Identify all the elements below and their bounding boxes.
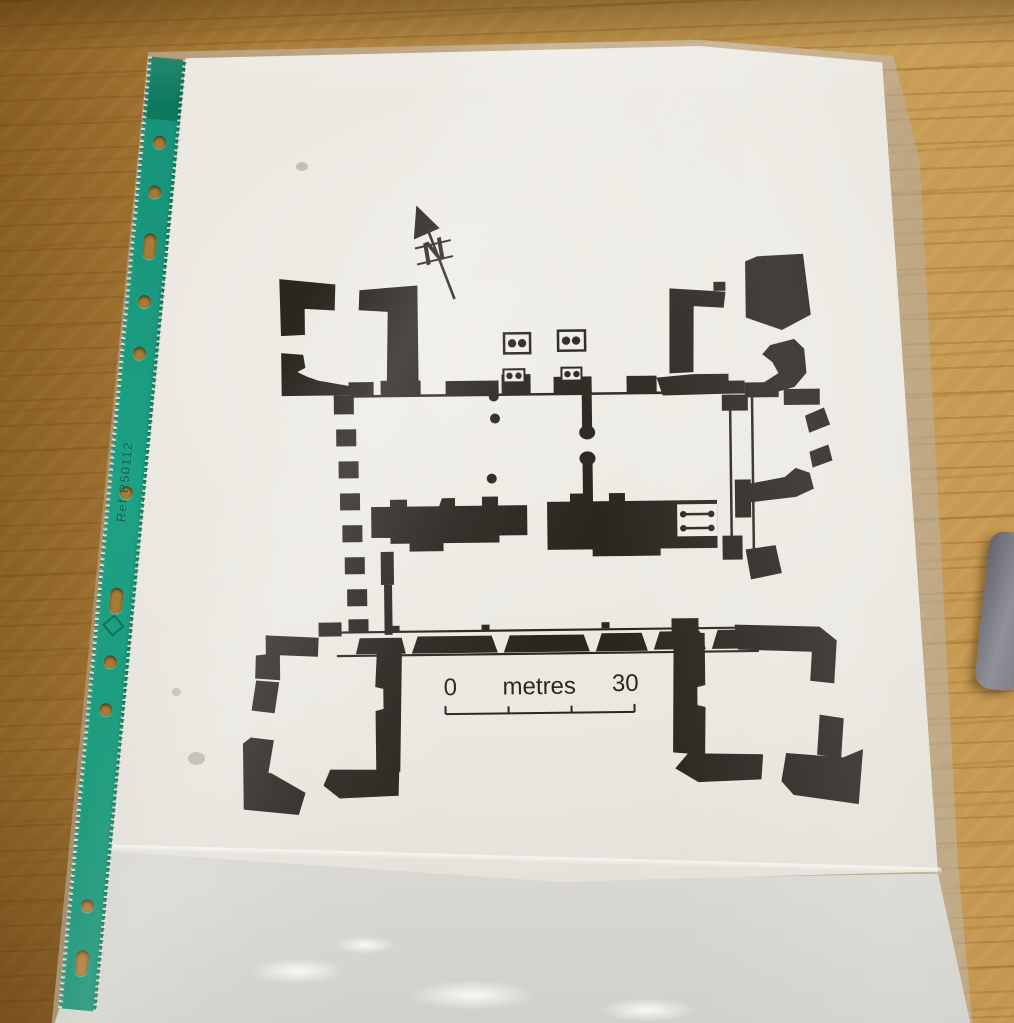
punch-hole: [132, 346, 146, 360]
plastic-crinkle: [335, 936, 395, 954]
scale-end-label: 30: [612, 670, 639, 697]
paper-stain: [172, 688, 181, 696]
paper-stain: [296, 162, 308, 171]
tower-southeast: [671, 616, 863, 806]
punch-hole: [148, 185, 162, 199]
punch-hole: [74, 950, 89, 977]
scale-unit-label: metres: [502, 673, 576, 701]
castle-floor-plan: N: [240, 200, 870, 830]
tower-northeast: [655, 254, 812, 396]
strip-logo-mark: [102, 614, 125, 637]
punch-hole: [103, 655, 117, 669]
plastic-crinkle: [410, 980, 535, 1010]
punch-hole: [80, 899, 94, 913]
north-label: N: [416, 230, 451, 272]
scale-bar: 0 metres 30: [443, 670, 639, 714]
paper-stain: [188, 752, 205, 765]
punch-hole: [142, 233, 157, 260]
scale-zero-label: 0: [443, 674, 457, 701]
north-arrow-icon: N: [413, 205, 454, 299]
punch-hole: [99, 703, 113, 717]
punch-hole: [137, 294, 151, 308]
strip-embossed-text: Ref R50112: [114, 372, 142, 523]
plastic-crinkle: [600, 998, 695, 1022]
tower-northwest: [279, 277, 418, 398]
plastic-crinkle: [250, 958, 345, 984]
punch-hole: [109, 587, 124, 614]
punch-hole: [152, 135, 166, 149]
